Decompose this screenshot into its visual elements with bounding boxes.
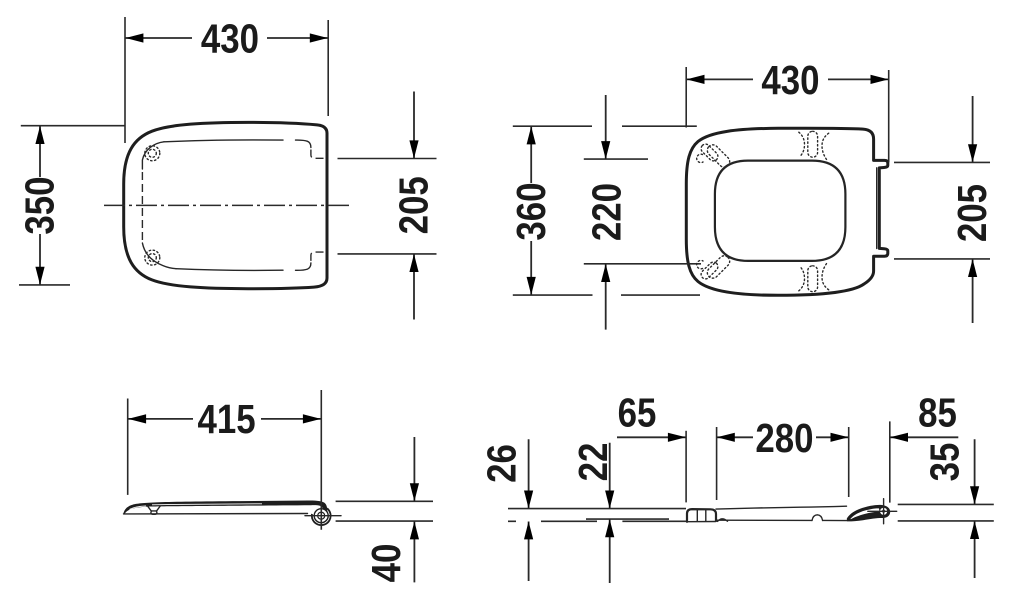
svg-text:205: 205: [392, 176, 437, 234]
svg-text:35: 35: [923, 443, 968, 482]
svg-text:26: 26: [480, 444, 525, 483]
svg-text:220: 220: [585, 183, 630, 241]
svg-text:430: 430: [201, 17, 259, 62]
svg-text:430: 430: [761, 58, 819, 103]
svg-text:415: 415: [198, 398, 256, 443]
svg-text:22: 22: [571, 443, 616, 482]
svg-text:40: 40: [364, 544, 409, 583]
svg-text:205: 205: [950, 184, 995, 242]
svg-text:65: 65: [618, 391, 657, 436]
svg-text:85: 85: [918, 391, 957, 436]
svg-text:350: 350: [18, 176, 63, 234]
svg-text:280: 280: [755, 417, 813, 462]
svg-text:360: 360: [509, 182, 554, 240]
